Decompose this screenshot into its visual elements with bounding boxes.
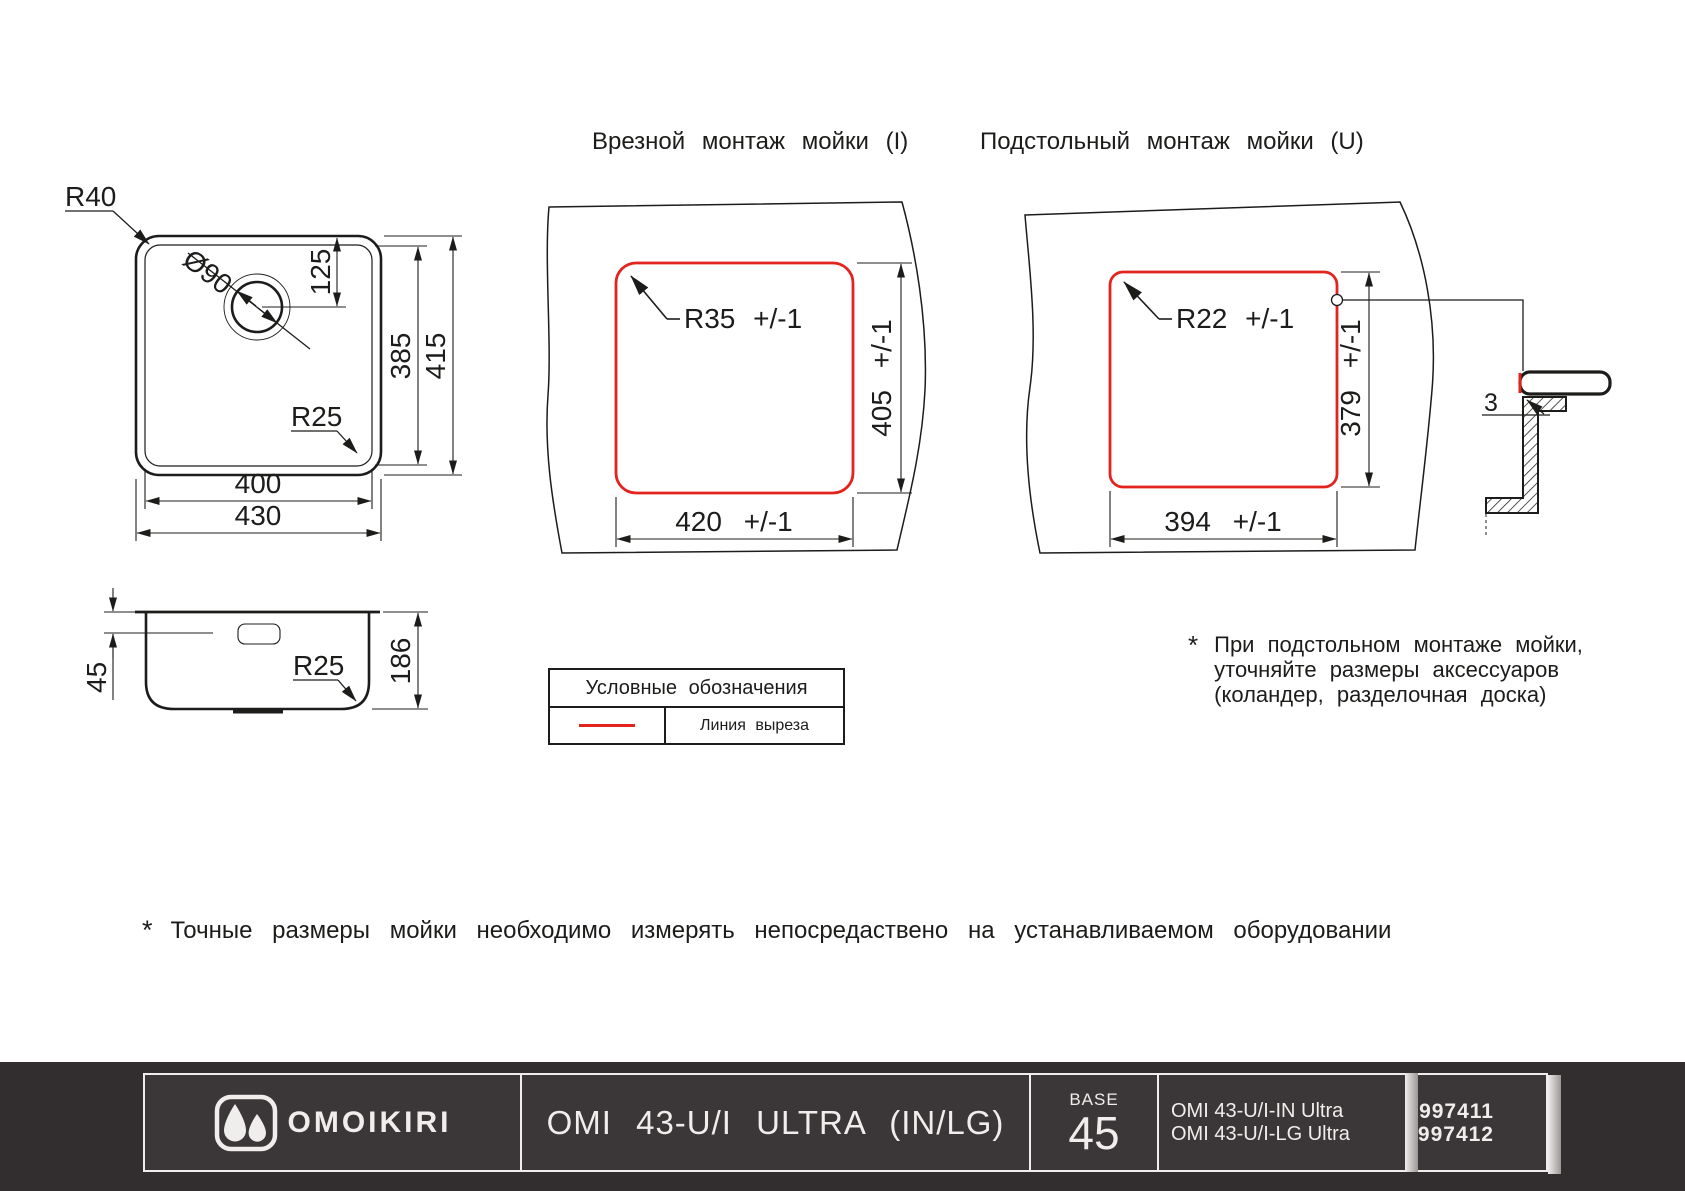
drop-left bbox=[224, 1104, 246, 1142]
spec-sheet-page: R40 Ø90 125 385 415 R25 400 430 bbox=[0, 0, 1685, 1191]
side-r25-leader bbox=[338, 680, 356, 701]
code-row-2: OMI 43-U/I-LG Ultra 4997412 bbox=[1171, 1123, 1494, 1146]
label-405: 405 +/-1 bbox=[866, 319, 897, 437]
cutout-line-inset bbox=[616, 263, 853, 493]
base-cell: BASE 45 bbox=[1031, 1075, 1159, 1170]
undermount-cutout-view bbox=[1025, 202, 1523, 553]
hole-diameter-arrow-ul bbox=[237, 291, 256, 306]
legend-box: Условные обозначения Линия выреза bbox=[548, 668, 845, 745]
codes-cell: OMI 43-U/I-IN Ultra 4997411 OMI 43-U/I-L… bbox=[1159, 1075, 1546, 1170]
label-gap-3: 3 bbox=[1484, 389, 1498, 417]
undermount-note-line3: (коландер, разделочная доска) bbox=[1214, 682, 1583, 707]
label-r35: R35 +/-1 bbox=[684, 303, 802, 334]
legend-row: Линия выреза bbox=[550, 708, 843, 743]
label-385: 385 bbox=[385, 333, 416, 380]
footer-band: OMOIKIRI OMI 43-U/I ULTRA (IN/LG) BASE 4… bbox=[0, 1062, 1685, 1191]
title-undermount: Подстольный монтаж мойки (U) bbox=[980, 128, 1335, 156]
sink-rim-section bbox=[1520, 372, 1610, 394]
page-edge-strip bbox=[1405, 1073, 1418, 1172]
detail-marker-circle bbox=[1332, 295, 1343, 306]
overflow-hole bbox=[238, 624, 280, 644]
base-value: 45 bbox=[1068, 1110, 1119, 1156]
footer-title-block: OMOIKIRI OMI 43-U/I ULTRA (IN/LG) BASE 4… bbox=[143, 1073, 1548, 1172]
undermount-note-line1: При подстольном монтаже мойки, bbox=[1214, 632, 1583, 657]
model-in-name: OMI 43-U/I-IN Ultra bbox=[1171, 1100, 1343, 1123]
label-side-r25: R25 bbox=[293, 650, 344, 681]
label-r22: R22 +/-1 bbox=[1176, 303, 1294, 334]
technical-drawing: R40 Ø90 125 385 415 R25 400 430 bbox=[0, 0, 1685, 1191]
countertop-outline-undermount bbox=[1025, 202, 1433, 553]
brand-cell: OMOIKIRI bbox=[145, 1075, 522, 1170]
label-394: 394 +/-1 bbox=[1164, 506, 1282, 537]
note-asterisk: * bbox=[1188, 632, 1198, 707]
brand-wordmark: OMOIKIRI bbox=[288, 1106, 452, 1140]
bottom-note-text: Точные размеры мойки необходимо измерять… bbox=[171, 917, 1392, 945]
r22-leader bbox=[1124, 282, 1159, 319]
model-in-code: 4997411 bbox=[1406, 1100, 1494, 1123]
title-inset-mount: Врезной монтаж мойки (I) bbox=[592, 128, 892, 156]
label-400: 400 bbox=[235, 468, 282, 499]
label-45: 45 bbox=[81, 662, 112, 693]
sink-top-view-labels: R40 Ø90 125 385 415 R25 400 430 bbox=[65, 181, 451, 531]
label-379: 379 +/-1 bbox=[1335, 319, 1366, 437]
model-lg-code: 4997412 bbox=[1405, 1123, 1494, 1146]
model-cell: OMI 43-U/I ULTRA (IN/LG) bbox=[522, 1075, 1031, 1170]
label-186: 186 bbox=[385, 638, 416, 685]
bottom-note: * Точные размеры мойки необходимо измеря… bbox=[142, 917, 1391, 945]
model-lg-name: OMI 43-U/I-LG Ultra bbox=[1171, 1123, 1350, 1146]
panel-edge-highlight bbox=[1548, 1075, 1561, 1174]
label-430: 430 bbox=[235, 500, 282, 531]
inset-cutout-labels: R35 +/-1 405 +/-1 420 +/-1 bbox=[675, 303, 897, 537]
code-row-1: OMI 43-U/I-IN Ultra 4997411 bbox=[1171, 1100, 1494, 1123]
label-r25: R25 bbox=[291, 401, 342, 432]
drop-right bbox=[248, 1114, 265, 1142]
label-415: 415 bbox=[420, 333, 451, 380]
r35-leader bbox=[631, 276, 667, 319]
undermount-note-line2: уточняйте размеры аксессуаров bbox=[1214, 657, 1583, 682]
undermount-note-text: При подстольном монтаже мойки, уточняйте… bbox=[1214, 632, 1583, 707]
sink-side-view bbox=[104, 588, 428, 711]
sink-side-view-labels: 45 R25 186 bbox=[81, 638, 416, 693]
label-r40: R40 bbox=[65, 181, 116, 212]
legend-title: Условные обозначения bbox=[550, 670, 843, 708]
label-hole-diameter: Ø90 bbox=[177, 243, 238, 300]
omoikiri-logo-icon bbox=[214, 1093, 278, 1153]
r40-leader bbox=[113, 211, 149, 244]
edge-section-detail: 3 bbox=[1482, 372, 1610, 537]
hole-diameter-arrow-lr bbox=[258, 308, 277, 323]
cut-line-swatch bbox=[579, 724, 635, 727]
undermount-note: * При подстольном монтаже мойки, уточняй… bbox=[1188, 632, 1583, 707]
r25-leader bbox=[337, 431, 357, 453]
legend-cut-line-label: Линия выреза bbox=[666, 708, 843, 743]
label-420: 420 +/-1 bbox=[675, 506, 793, 537]
undermount-cutout-labels: R22 +/-1 379 +/-1 394 +/-1 bbox=[1164, 303, 1366, 537]
legend-swatch-cell bbox=[550, 708, 666, 743]
bottom-note-asterisk: * bbox=[142, 917, 153, 945]
label-125: 125 bbox=[305, 249, 336, 296]
